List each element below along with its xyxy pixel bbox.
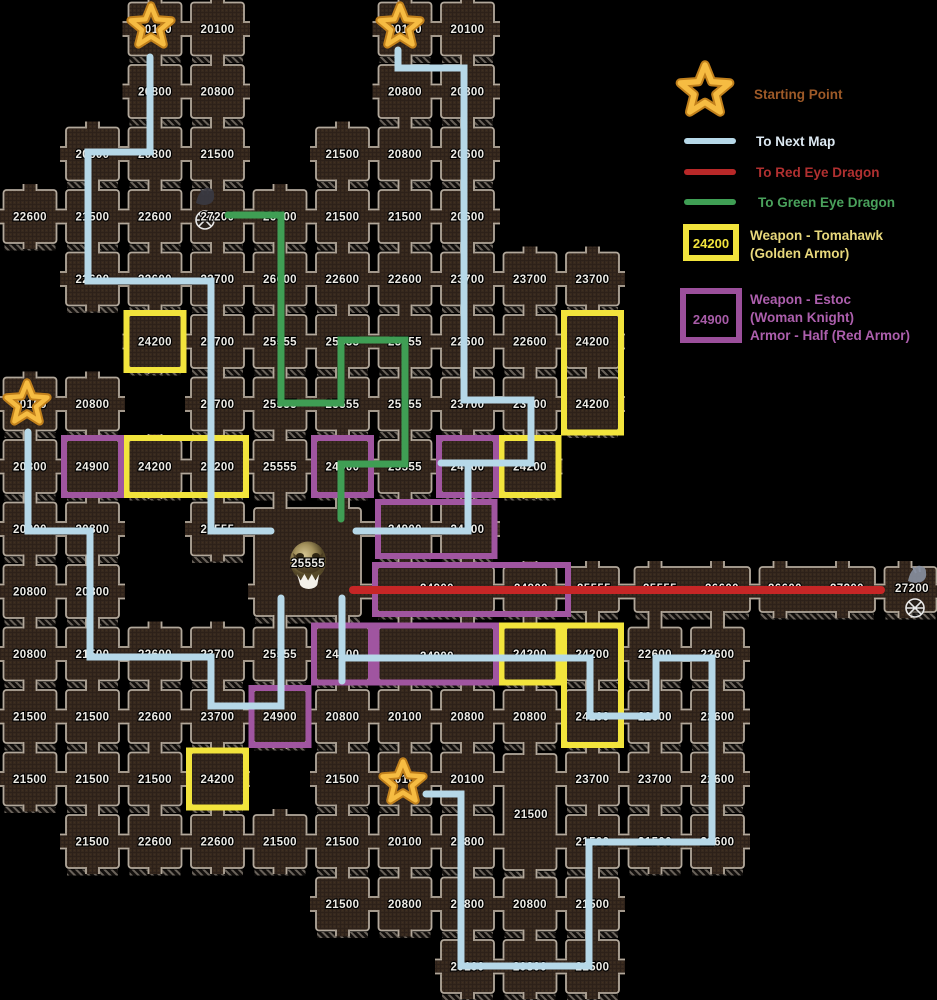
svg-text:21500: 21500	[13, 712, 47, 724]
svg-text:23700: 23700	[201, 399, 235, 411]
svg-text:Armor - Half (Red Armor): Armor - Half (Red Armor)	[750, 328, 910, 343]
svg-text:23700: 23700	[638, 774, 672, 786]
svg-text:20100: 20100	[388, 837, 422, 849]
svg-text:21500: 21500	[326, 899, 360, 911]
svg-text:20800: 20800	[451, 712, 485, 724]
svg-text:21500: 21500	[263, 837, 297, 849]
svg-text:20800: 20800	[388, 149, 422, 161]
svg-text:24900: 24900	[693, 312, 729, 327]
svg-text:20800: 20800	[388, 87, 422, 99]
svg-text:24200: 24200	[201, 774, 235, 786]
svg-text:23700: 23700	[576, 774, 610, 786]
svg-text:21500: 21500	[76, 837, 110, 849]
svg-text:23700: 23700	[201, 337, 235, 349]
svg-text:To Next Map: To Next Map	[756, 134, 835, 149]
svg-text:To Red Eye Dragon: To Red Eye Dragon	[756, 165, 880, 180]
svg-text:20800: 20800	[138, 87, 172, 99]
svg-text:20100: 20100	[388, 712, 422, 724]
svg-text:20800: 20800	[451, 899, 485, 911]
svg-text:22600: 22600	[701, 774, 735, 786]
svg-text:21500: 21500	[76, 212, 110, 224]
svg-text:24200: 24200	[693, 236, 729, 251]
svg-text:20800: 20800	[13, 649, 47, 661]
svg-text:24200: 24200	[138, 337, 172, 349]
svg-text:20800: 20800	[13, 587, 47, 599]
svg-text:20100: 20100	[451, 24, 485, 36]
svg-text:Starting Point: Starting Point	[754, 87, 843, 102]
svg-text:21500: 21500	[326, 837, 360, 849]
svg-text:Weapon - Tomahawk: Weapon - Tomahawk	[750, 228, 884, 243]
svg-text:21500: 21500	[326, 149, 360, 161]
svg-text:24200: 24200	[576, 337, 610, 349]
svg-text:21500: 21500	[13, 774, 47, 786]
svg-text:22600: 22600	[326, 274, 360, 286]
svg-text:20800: 20800	[388, 899, 422, 911]
svg-text:22600: 22600	[701, 712, 735, 724]
svg-text:25555: 25555	[291, 558, 325, 570]
svg-text:22600: 22600	[138, 212, 172, 224]
svg-text:20100: 20100	[451, 774, 485, 786]
svg-text:23700: 23700	[513, 274, 547, 286]
svg-text:20800: 20800	[513, 712, 547, 724]
svg-text:24900: 24900	[263, 712, 297, 724]
svg-text:24900: 24900	[76, 462, 110, 474]
svg-text:23700: 23700	[576, 274, 610, 286]
svg-text:22600: 22600	[201, 837, 235, 849]
svg-text:Weapon - Estoc: Weapon - Estoc	[750, 292, 852, 307]
svg-text:27200: 27200	[895, 583, 929, 595]
svg-text:24200: 24200	[201, 462, 235, 474]
svg-text:21500: 21500	[514, 809, 548, 821]
svg-text:24200: 24200	[138, 462, 172, 474]
svg-text:25555: 25555	[263, 462, 297, 474]
svg-text:21500: 21500	[201, 149, 235, 161]
svg-text:21500: 21500	[76, 712, 110, 724]
svg-text:22600: 22600	[13, 212, 47, 224]
svg-text:20100: 20100	[201, 24, 235, 36]
svg-text:23700: 23700	[201, 712, 235, 724]
svg-text:21500: 21500	[138, 774, 172, 786]
svg-text:22600: 22600	[513, 337, 547, 349]
svg-text:(Woman Knight): (Woman Knight)	[750, 310, 854, 325]
svg-text:21500: 21500	[326, 212, 360, 224]
svg-text:(Golden Armor): (Golden Armor)	[750, 246, 849, 261]
svg-text:20800: 20800	[76, 399, 110, 411]
svg-text:20800: 20800	[451, 837, 485, 849]
svg-text:20800: 20800	[513, 899, 547, 911]
svg-text:21500: 21500	[76, 774, 110, 786]
svg-text:21500: 21500	[388, 212, 422, 224]
svg-text:To Green Eye Dragon: To Green Eye Dragon	[758, 195, 895, 210]
svg-text:21500: 21500	[326, 774, 360, 786]
svg-text:20800: 20800	[326, 712, 360, 724]
svg-text:22600: 22600	[138, 712, 172, 724]
svg-text:22600: 22600	[138, 837, 172, 849]
svg-text:22600: 22600	[388, 274, 422, 286]
svg-text:24200: 24200	[576, 399, 610, 411]
svg-text:20800: 20800	[201, 87, 235, 99]
